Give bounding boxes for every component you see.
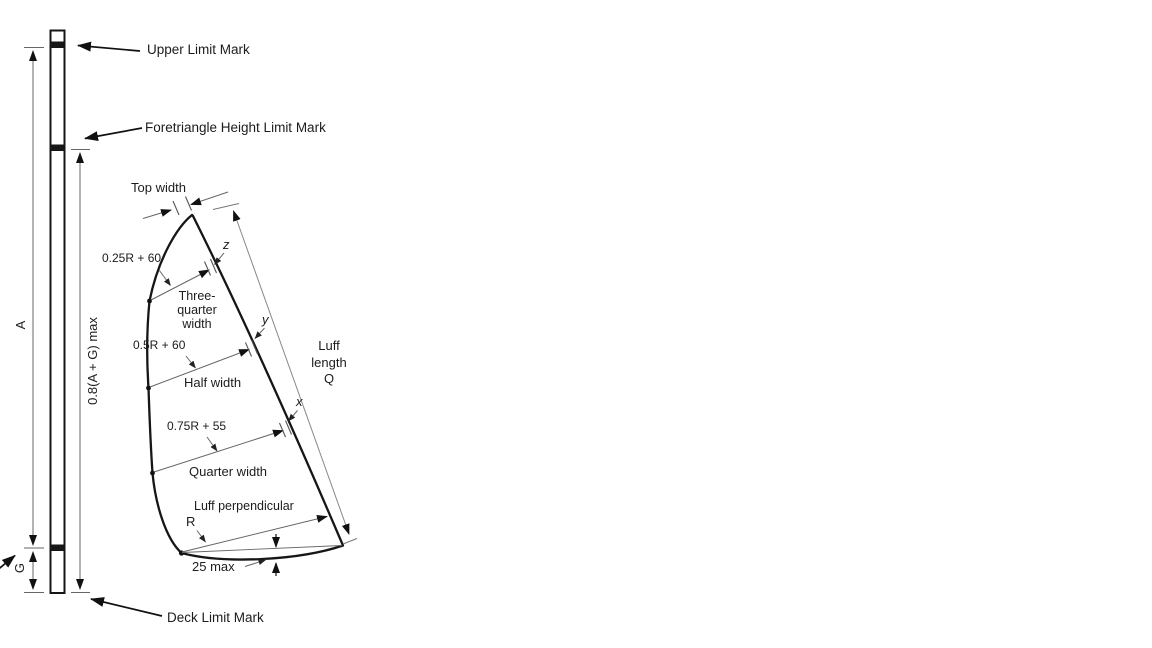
- r-leader: [197, 531, 206, 543]
- sail-measurement-diagram: Upper Limit Mark Foretriangle Height Lim…: [0, 0, 1152, 648]
- luff-length-label-line1: Luff: [301, 338, 357, 355]
- half-leech-point: [146, 386, 151, 391]
- dim-amax-label: 0.8(A + G) max: [86, 311, 102, 411]
- upper-limit-pointer-arrow: [78, 46, 140, 52]
- r-label: R: [186, 515, 195, 529]
- y-label: y: [262, 313, 269, 327]
- half-tick: [246, 343, 252, 357]
- foretriangle-pointer-arrow: [85, 128, 142, 139]
- deck-limit-pointer-arrow: [91, 599, 162, 616]
- half-width-formula: 0.5R + 60: [133, 339, 185, 352]
- three-quarter-width-label-line2: quarter: [166, 303, 228, 317]
- quarter-width-formula: 0.75R + 55: [167, 420, 226, 433]
- z-leader: [215, 253, 225, 265]
- three-quarter-formula-leader: [159, 270, 171, 286]
- half-width-label: Half width: [184, 376, 241, 390]
- foretriangle-limit-band: [51, 145, 65, 152]
- three-quarter-width-formula: 0.25R + 60: [102, 252, 161, 265]
- top-width-right-arrow: [191, 192, 228, 205]
- three-quarter-width-label: Three- quarter width: [166, 289, 228, 331]
- top-width-label: Top width: [131, 181, 186, 195]
- luff-length-label-line3: Q: [301, 371, 357, 388]
- three-quarter-width-label-line3: width: [166, 317, 228, 331]
- foretriangle-height-limit-mark-label: Foretriangle Height Limit Mark: [145, 121, 326, 136]
- dim-a-label: A: [14, 315, 32, 335]
- quarter-leech-point: [150, 471, 155, 476]
- mast: [51, 31, 65, 594]
- deck-limit-mark-label: Deck Limit Mark: [167, 611, 264, 626]
- luff-length-top-tick: [213, 204, 239, 210]
- z-label: z: [223, 238, 230, 252]
- three-quarter-tick: [205, 262, 211, 276]
- x-label: x: [296, 395, 303, 409]
- quarter-tick: [280, 423, 286, 437]
- top-width-tick: [186, 197, 192, 211]
- top-width-tick: [173, 201, 179, 215]
- x-leader: [289, 411, 298, 422]
- luff-length-label: Luff length Q: [301, 338, 357, 388]
- luff-length-label-line2: length: [301, 355, 357, 372]
- half-formula-leader: [186, 356, 196, 368]
- dim-g-label: G: [13, 558, 31, 578]
- three-quarter-width-label-line1: Three-: [166, 289, 228, 303]
- foot-round-label: 25 max: [192, 560, 235, 574]
- quarter-formula-leader: [207, 437, 217, 451]
- three-quarter-leech-point: [147, 299, 152, 304]
- quarter-width-label: Quarter width: [189, 465, 267, 479]
- y-leader: [255, 328, 265, 339]
- upper-limit-mark-label: Upper Limit Mark: [147, 43, 250, 58]
- top-width-left-arrow: [143, 210, 171, 219]
- lower-limit-band: [51, 545, 65, 552]
- luff-length-bottom-tick: [343, 539, 357, 545]
- luff-perpendicular-label: Luff perpendicular: [194, 500, 294, 514]
- upper-limit-band: [51, 42, 65, 49]
- foot-round-leader: [245, 560, 266, 567]
